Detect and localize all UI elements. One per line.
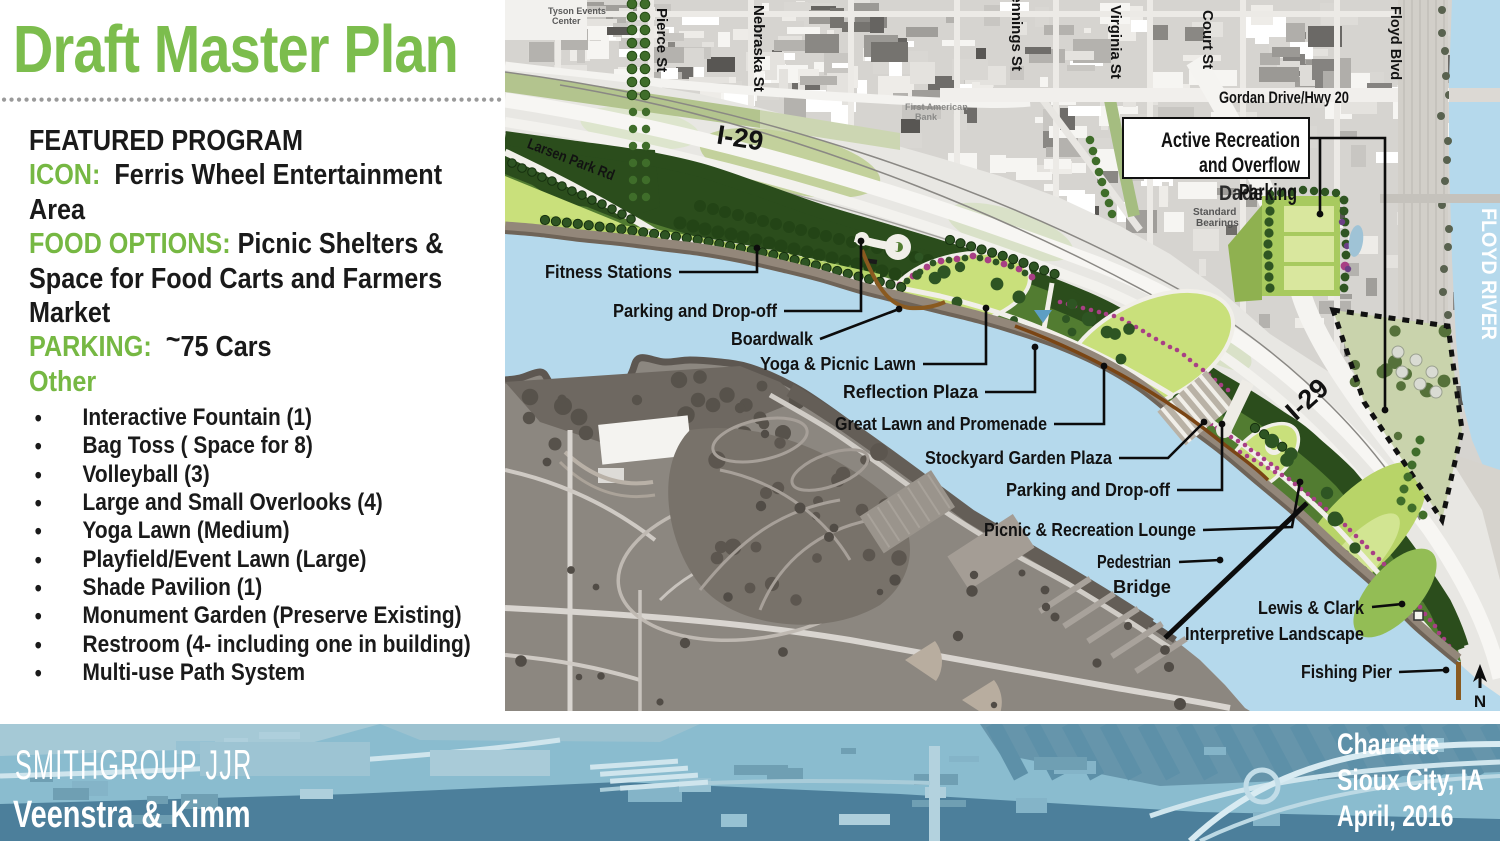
svg-text:Parking and Drop-off: Parking and Drop-off bbox=[613, 300, 778, 321]
svg-text:First American: First American bbox=[905, 102, 968, 112]
svg-text:N: N bbox=[1474, 692, 1486, 711]
svg-text:and Overflow: and Overflow bbox=[1199, 154, 1300, 177]
svg-text:Center: Center bbox=[552, 16, 581, 26]
svg-text:Jennings St: Jennings St bbox=[1008, 0, 1025, 71]
svg-text:Reflection Plaza: Reflection Plaza bbox=[843, 381, 979, 402]
svg-text:Lewis & Clark: Lewis & Clark bbox=[1258, 597, 1365, 618]
svg-text:Active Recreation: Active Recreation bbox=[1161, 129, 1300, 152]
svg-text:Tyson Events: Tyson Events bbox=[548, 6, 606, 16]
svg-text:Stockyard Garden Plaza: Stockyard Garden Plaza bbox=[925, 447, 1113, 468]
svg-text:Bearings: Bearings bbox=[1196, 218, 1239, 229]
svg-text:Picnic & Recreation Lounge: Picnic & Recreation Lounge bbox=[984, 519, 1196, 540]
svg-text:Parking: Parking bbox=[1239, 179, 1297, 205]
svg-text:Court St: Court St bbox=[1199, 10, 1216, 69]
svg-text:Pedestrian: Pedestrian bbox=[1097, 551, 1171, 572]
svg-text:Fitness Stations: Fitness Stations bbox=[545, 261, 672, 282]
svg-text:Parking and Drop-off: Parking and Drop-off bbox=[1006, 479, 1171, 500]
svg-text:Nebraska St: Nebraska St bbox=[750, 5, 767, 92]
svg-text:Boardwalk: Boardwalk bbox=[731, 328, 814, 349]
svg-text:Virginia St: Virginia St bbox=[1107, 5, 1124, 79]
svg-text:Bridge: Bridge bbox=[1113, 576, 1171, 597]
svg-text:Gordan Drive/Hwy 20: Gordan Drive/Hwy 20 bbox=[1219, 89, 1349, 107]
svg-text:Standard: Standard bbox=[1193, 207, 1236, 218]
svg-text:Pierce St: Pierce St bbox=[653, 8, 670, 72]
svg-text:Fishing Pier: Fishing Pier bbox=[1301, 661, 1392, 682]
svg-text:FLOYD RIVER: FLOYD RIVER bbox=[1477, 208, 1500, 340]
svg-text:Bank: Bank bbox=[915, 112, 938, 122]
svg-text:Floyd Blvd: Floyd Blvd bbox=[1387, 6, 1403, 80]
svg-text:Yoga & Picnic Lawn: Yoga & Picnic Lawn bbox=[760, 353, 916, 374]
svg-text:Interpretive Landscape: Interpretive Landscape bbox=[1185, 623, 1364, 644]
svg-text:Great Lawn and Promenade: Great Lawn and Promenade bbox=[835, 413, 1047, 434]
